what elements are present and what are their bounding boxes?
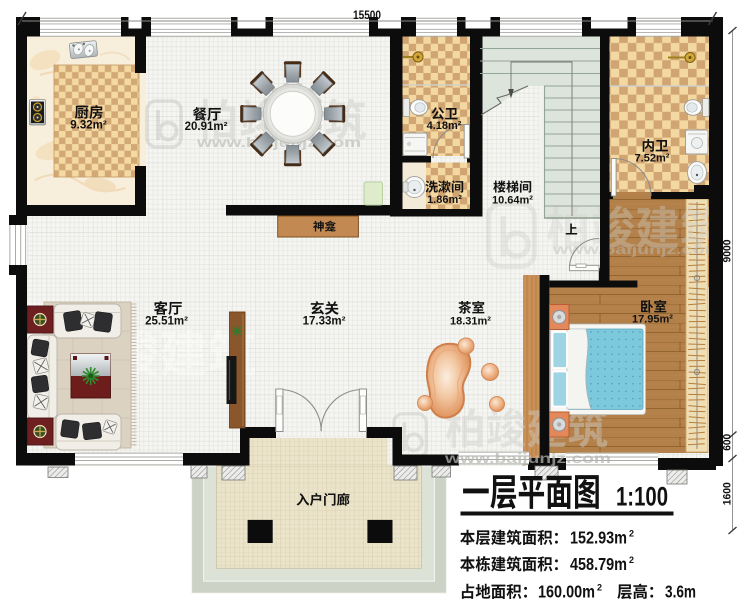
- svg-text:458.79m: 458.79m: [570, 554, 627, 574]
- svg-text:18.31m²: 18.31m²: [450, 316, 491, 328]
- svg-text:17.95m²: 17.95m²: [632, 314, 673, 326]
- svg-text:152.93m: 152.93m: [570, 528, 627, 548]
- svg-text:1600: 1600: [722, 482, 734, 505]
- svg-text:9.32m²: 9.32m²: [70, 120, 107, 132]
- svg-text:20.91m²: 20.91m²: [185, 121, 228, 133]
- svg-text:10.64m²: 10.64m²: [492, 195, 533, 207]
- svg-text:www.baijunjz.com: www.baijunjz.com: [444, 451, 611, 466]
- svg-text:1.86m²: 1.86m²: [427, 194, 462, 206]
- svg-text:www.baijunjz.com: www.baijunjz.com: [552, 242, 722, 257]
- svg-text:9000: 9000: [722, 240, 734, 263]
- svg-text:600: 600: [722, 434, 734, 451]
- svg-text:2: 2: [597, 583, 602, 593]
- svg-text:15500: 15500: [353, 10, 381, 22]
- svg-text:7.52m²: 7.52m²: [635, 153, 670, 165]
- svg-text:2: 2: [629, 555, 634, 565]
- svg-text:17.33m²: 17.33m²: [303, 316, 346, 328]
- svg-text:1:100: 1:100: [616, 482, 668, 512]
- svg-text:4.18m²: 4.18m²: [427, 120, 462, 132]
- svg-text:160.00m: 160.00m: [538, 582, 595, 602]
- svg-text:3.6m: 3.6m: [665, 582, 696, 602]
- svg-text:2: 2: [629, 529, 634, 539]
- svg-text:25.51m²: 25.51m²: [145, 316, 188, 328]
